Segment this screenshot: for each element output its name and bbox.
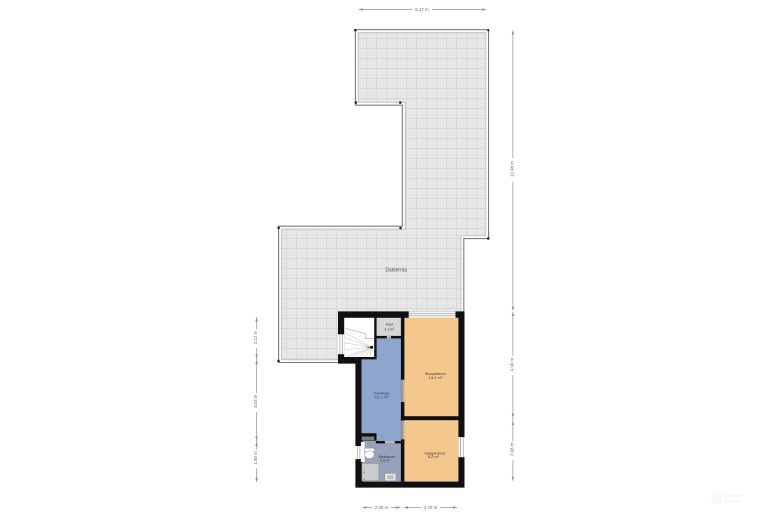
svg-text:1.1 m²: 1.1 m² bbox=[384, 327, 395, 331]
svg-text:3.6 m²: 3.6 m² bbox=[380, 459, 391, 463]
svg-text:8.2 m²: 8.2 m² bbox=[428, 454, 440, 459]
svg-text:6.17 m: 6.17 m bbox=[415, 7, 429, 12]
svg-text:4.03 m: 4.03 m bbox=[253, 394, 258, 408]
svg-text:2.00 m: 2.00 m bbox=[375, 505, 389, 510]
svg-text:3.08 m: 3.08 m bbox=[509, 442, 514, 456]
svg-text:Dakterras: Dakterras bbox=[385, 267, 407, 273]
svg-text:12.1 m²: 12.1 m² bbox=[375, 394, 389, 399]
svg-text:2.70 m: 2.70 m bbox=[424, 505, 438, 510]
svg-text:1.90 m: 1.90 m bbox=[253, 451, 258, 465]
svg-text:13.2 m²: 13.2 m² bbox=[429, 375, 443, 380]
svg-text:Kast: Kast bbox=[386, 322, 393, 326]
svg-text:13.98 m: 13.98 m bbox=[509, 161, 514, 177]
svg-text:2.12 m: 2.12 m bbox=[253, 331, 258, 345]
svg-text:4.90 m: 4.90 m bbox=[509, 358, 514, 372]
